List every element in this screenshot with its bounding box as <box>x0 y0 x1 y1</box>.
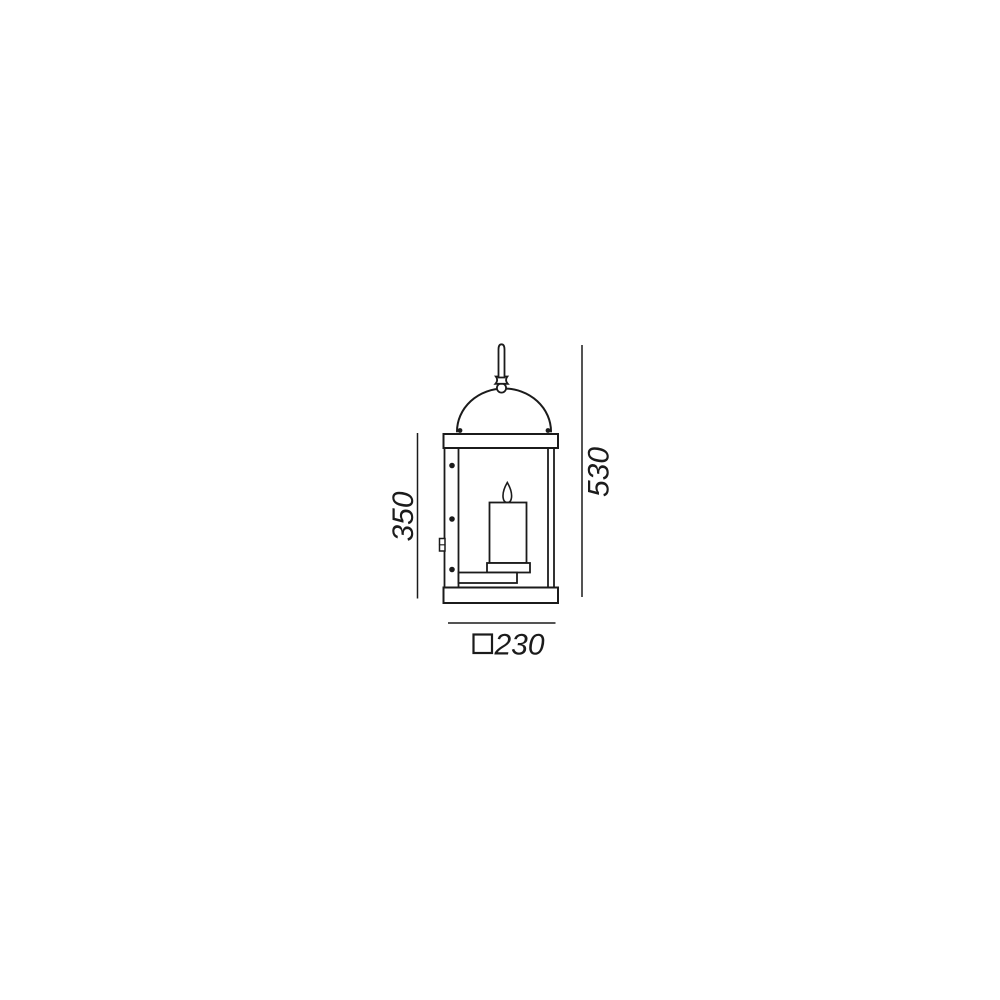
handle-rivet-right <box>546 428 551 433</box>
dome-handle-arc <box>457 389 551 432</box>
candle-plate <box>487 563 530 573</box>
candle-shelf <box>459 573 518 584</box>
hinge-pin-middle <box>449 516 455 522</box>
dimension-label-base-width: 230 <box>494 629 545 662</box>
dimension-drawing: 350 530 230 <box>0 0 1000 1000</box>
hanging-loop-icon <box>499 344 505 377</box>
hinge-pin-top <box>449 463 455 469</box>
candle-flame-icon <box>503 483 512 503</box>
dimension-label-body-height: 350 <box>387 491 420 541</box>
candle <box>490 503 527 564</box>
hanging-ring-icon <box>497 383 506 392</box>
dimension-label-total-height: 530 <box>583 447 616 497</box>
hinge-pin-bottom <box>449 567 455 573</box>
handle-rivet-left <box>458 428 463 433</box>
square-section-symbol-icon <box>474 635 493 654</box>
lantern-bottom-bar <box>444 588 559 604</box>
lantern-drawing-svg: 350 530 230 <box>0 0 1000 1000</box>
lantern-top-bar <box>444 434 559 448</box>
